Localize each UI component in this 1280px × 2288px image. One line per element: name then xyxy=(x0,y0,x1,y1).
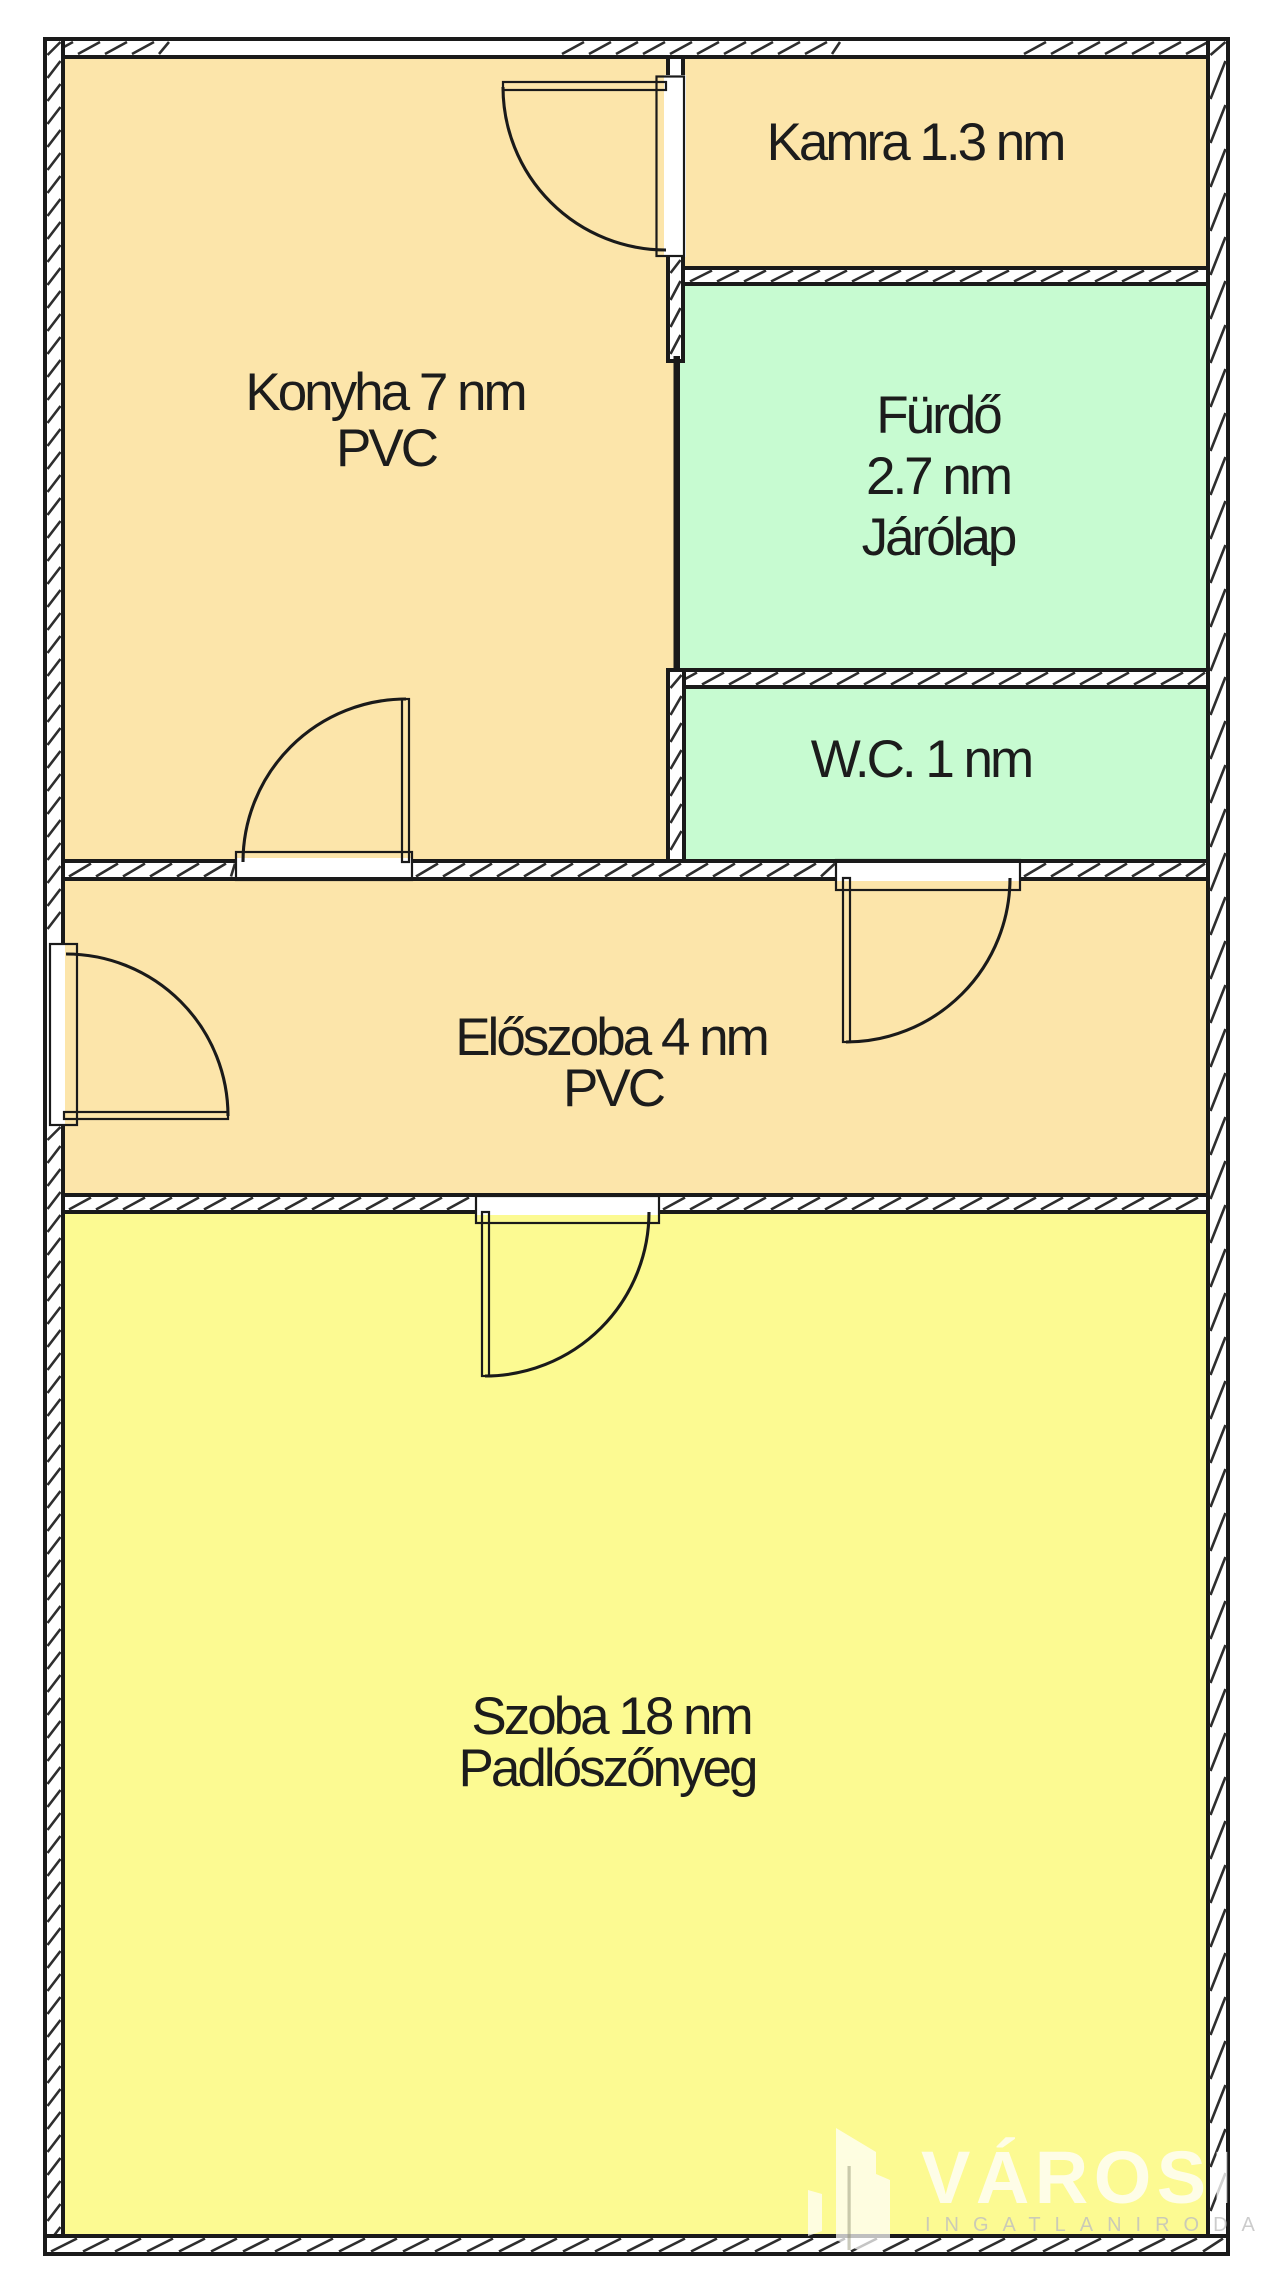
svg-text:Konyha 7 nm: Konyha 7 nm xyxy=(245,363,524,422)
svg-text:PVC: PVC xyxy=(563,1059,665,1118)
svg-text:PVC: PVC xyxy=(336,419,438,478)
svg-text:Kamra 1.3 nm: Kamra 1.3 nm xyxy=(767,113,1064,172)
svg-text:INGATLANIRODA: INGATLANIRODA xyxy=(925,2214,1269,2236)
svg-text:Járólap: Járólap xyxy=(862,508,1016,567)
svg-text:2.7 nm: 2.7 nm xyxy=(866,447,1010,506)
svg-text:Szoba 18 nm: Szoba 18 nm xyxy=(471,1687,750,1746)
svg-text:VÁROSI: VÁROSI xyxy=(921,2136,1238,2219)
svg-text:Fürdő: Fürdő xyxy=(876,386,1001,445)
svg-text:Padlószőnyeg: Padlószőnyeg xyxy=(459,1739,756,1798)
svg-text:W.C. 1 nm: W.C. 1 nm xyxy=(811,730,1031,789)
